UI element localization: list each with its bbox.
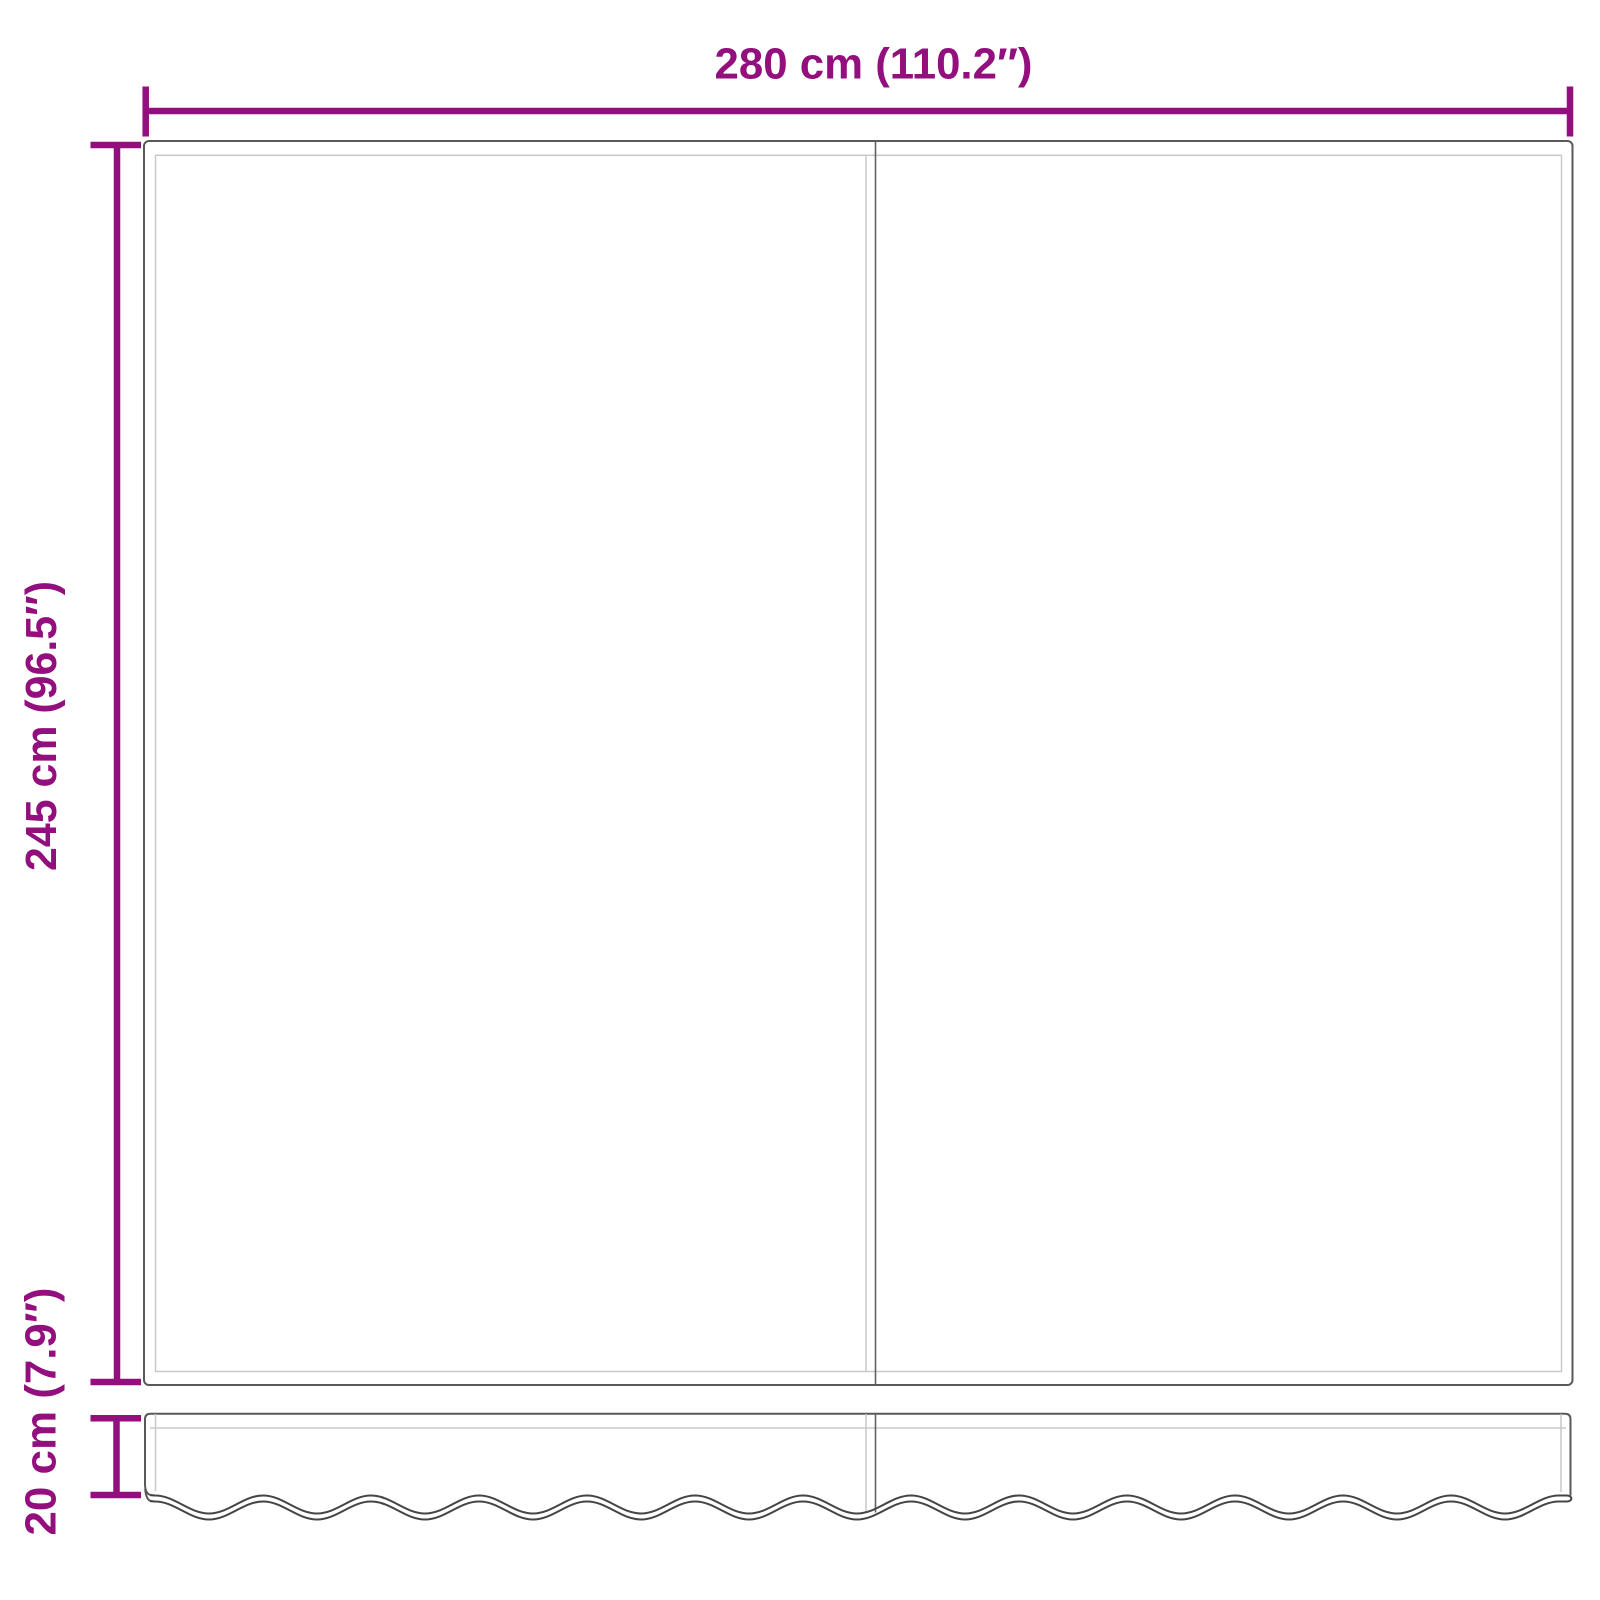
svg-text:245 cm (96.5″): 245 cm (96.5″) (17, 581, 66, 871)
svg-text:20 cm (7.9″): 20 cm (7.9″) (17, 1288, 66, 1536)
svg-text:280 cm (110.2″): 280 cm (110.2″) (715, 40, 1033, 89)
